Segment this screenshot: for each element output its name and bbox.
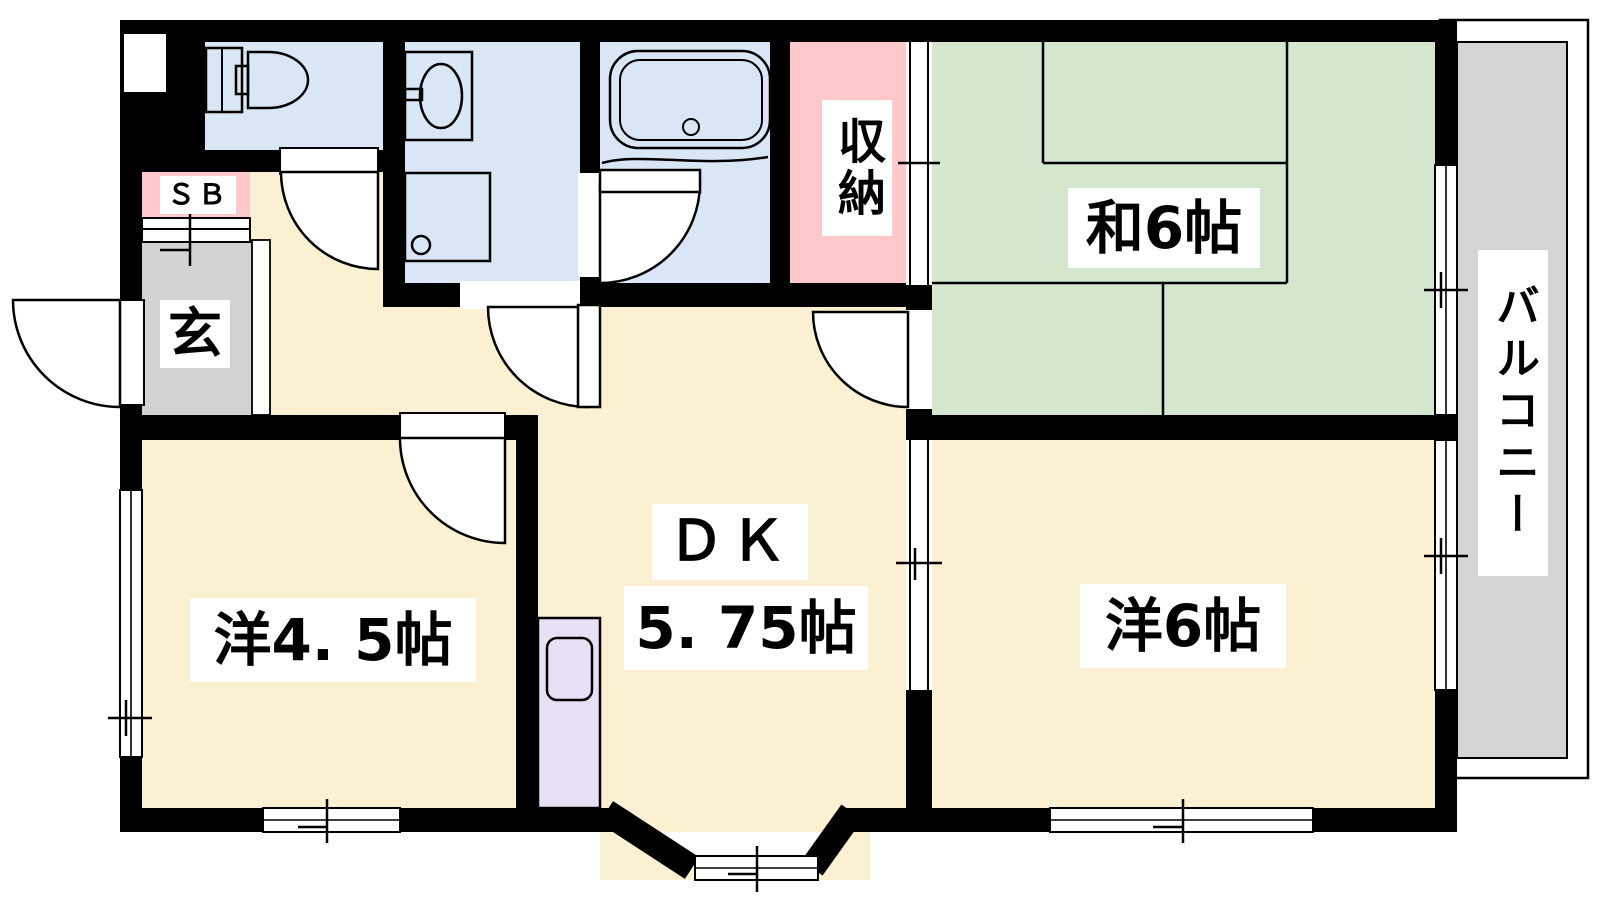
genkan-step (252, 240, 270, 415)
western-room-45-label: 洋4. 5帖 (190, 598, 476, 682)
bath-door-leaf (600, 170, 700, 192)
toilet-door-gap (280, 148, 378, 174)
dk-label: ＤＫ (652, 504, 808, 580)
storage-label: 収納 (822, 100, 892, 236)
kitchen-sink-icon (538, 618, 600, 808)
dk-washitsu-door-gap (906, 310, 932, 409)
entrance-door-gap (118, 300, 144, 405)
balcony-label: バルコニー (1478, 250, 1548, 576)
floor-plan-drawing (0, 0, 1600, 900)
entrance-door-icon (13, 300, 120, 407)
shoe-box-label: ＳＢ (160, 176, 236, 214)
floor-plan: ＳＢ 玄 収納 和6帖 バルコニー 洋4. 5帖 ＤＫ 5. 75帖 洋6帖 (0, 0, 1600, 900)
pipe-space (124, 34, 166, 92)
washroom-door-leaf (578, 305, 600, 407)
japanese-room-label: 和6帖 (1068, 188, 1260, 268)
bath-door-gap (578, 173, 602, 277)
dk-size-label: 5. 75帖 (624, 586, 868, 670)
washroom-door-gap (460, 281, 580, 309)
western-room-6-label: 洋6帖 (1080, 584, 1286, 668)
genkan-label: 玄 (160, 300, 230, 368)
washroom (405, 42, 580, 283)
window-dk-bay (695, 846, 818, 892)
